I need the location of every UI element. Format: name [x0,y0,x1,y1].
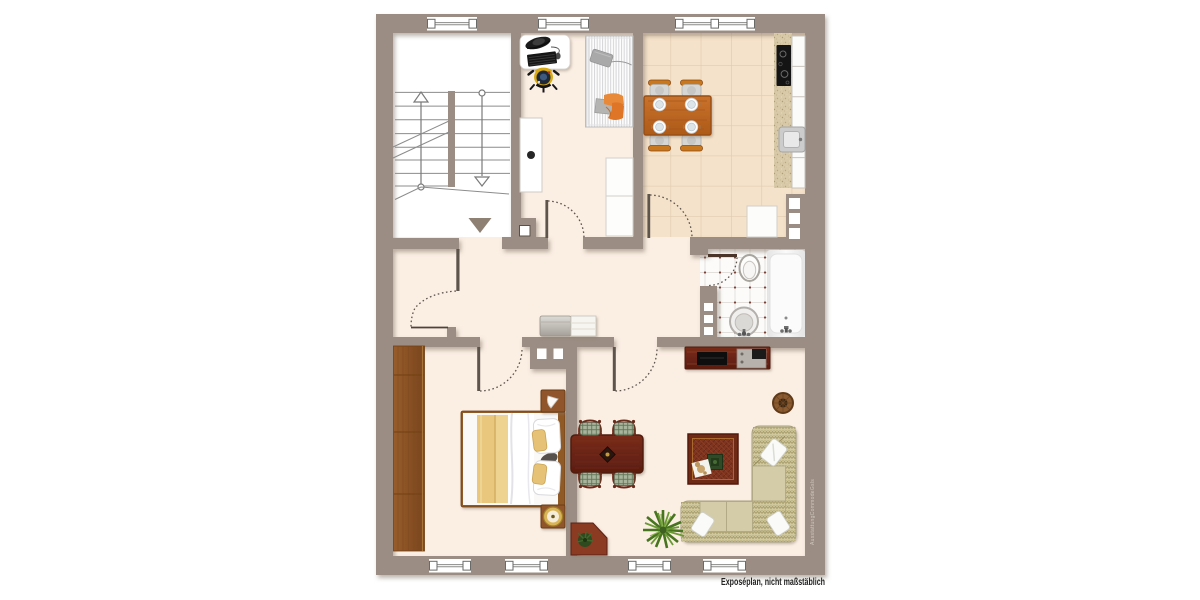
svg-text:AusstattungCommodeGsls: AusstattungCommodeGsls [810,479,816,545]
svg-text:Exposéplan, nicht maßstäblich: Exposéplan, nicht maßstäblich [721,577,825,588]
